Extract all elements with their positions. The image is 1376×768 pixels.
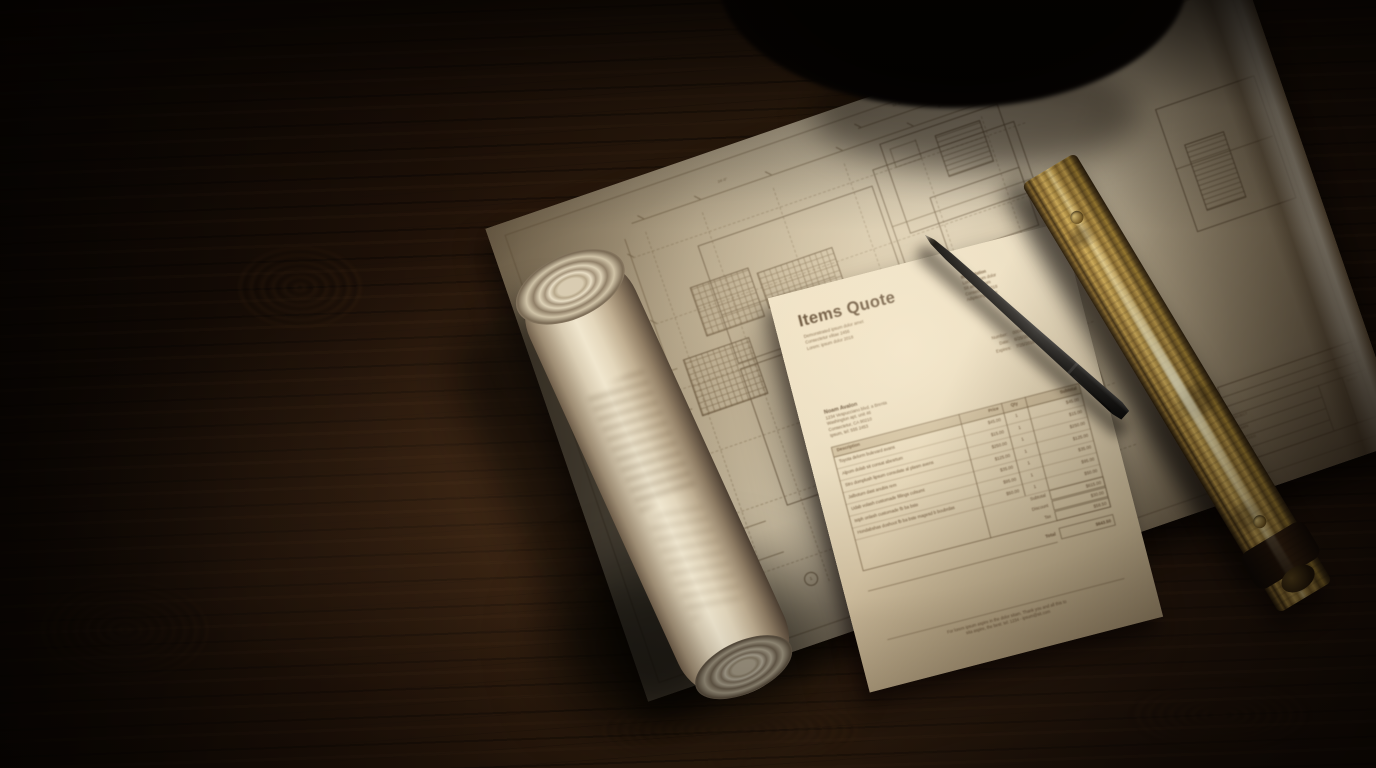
desk-scene: 24'-0" 12'-6" 8'-4" 16'-0" 9'-2" B C 5 6… bbox=[0, 0, 1376, 768]
bubble-label: 1 bbox=[809, 576, 813, 581]
footer-rule bbox=[887, 578, 1124, 640]
bill-to-block: Noam Avalon 1234 Vespucciano blvd. a Bre… bbox=[823, 393, 892, 439]
wood-knot bbox=[1130, 680, 1310, 750]
roll-print-showthrough bbox=[646, 496, 744, 620]
wood-knot bbox=[40, 580, 210, 680]
roll-print-showthrough bbox=[586, 368, 696, 512]
wood-knot bbox=[235, 245, 365, 330]
